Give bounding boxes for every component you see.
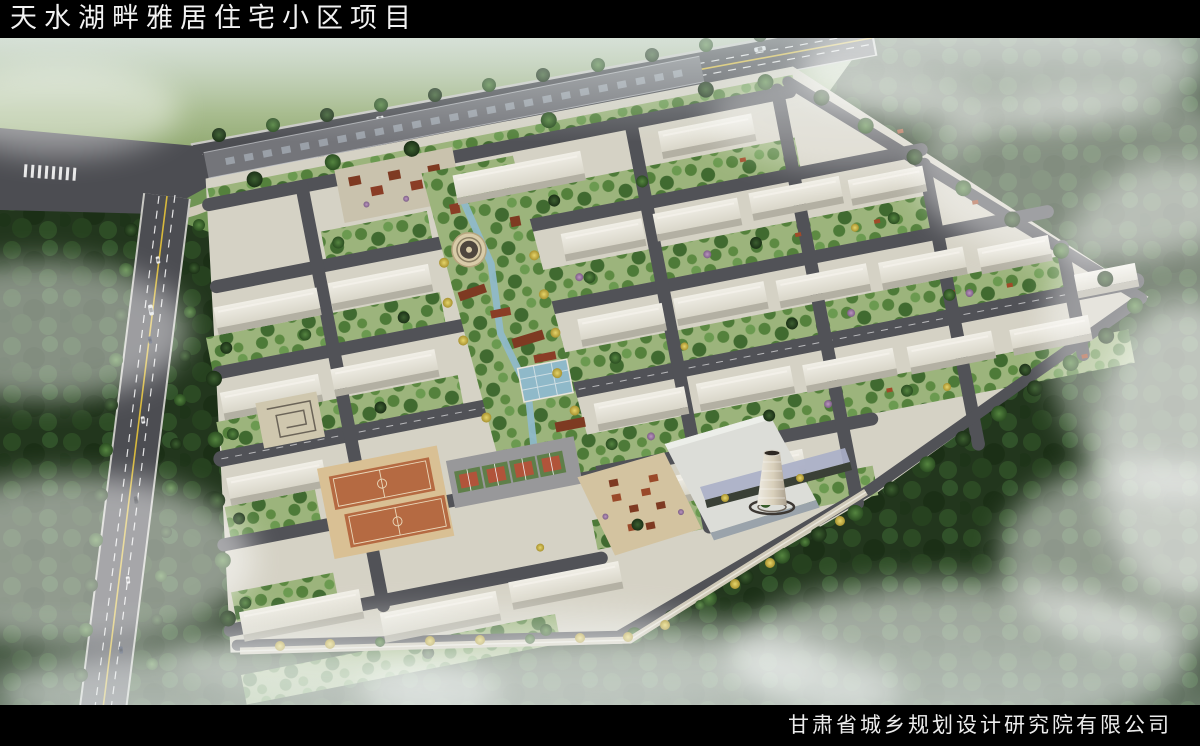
tree-icon: [99, 443, 113, 457]
tree-icon: [188, 262, 200, 274]
tree-icon: [765, 558, 775, 568]
tree-icon: [835, 516, 845, 526]
bottom-haze: [0, 600, 1200, 710]
chimney-top: [764, 450, 780, 456]
tree-icon: [193, 219, 205, 231]
credit-bar: 甘肃省城乡规划设计研究院有限公司: [0, 705, 1200, 746]
tree-icon: [730, 579, 740, 589]
title-bar: 天水湖畔雅居住宅小区项目: [0, 0, 1200, 38]
tree-icon: [104, 398, 118, 412]
tree-icon: [800, 537, 810, 547]
tree-icon: [124, 223, 138, 237]
aerial-rendering: [0, 0, 1200, 746]
tree-icon: [170, 438, 182, 450]
render-board: 天水湖畔雅居住宅小区项目 甘肃省城乡规划设计研究院有限公司: [0, 0, 1200, 746]
cloud: [710, 70, 990, 170]
tree-icon: [174, 394, 186, 406]
project-title: 天水湖畔雅居住宅小区项目: [0, 3, 418, 34]
design-institute-name: 甘肃省城乡规划设计研究院有限公司: [788, 713, 1200, 737]
tree-icon: [721, 494, 729, 502]
tree-icon: [796, 474, 804, 482]
